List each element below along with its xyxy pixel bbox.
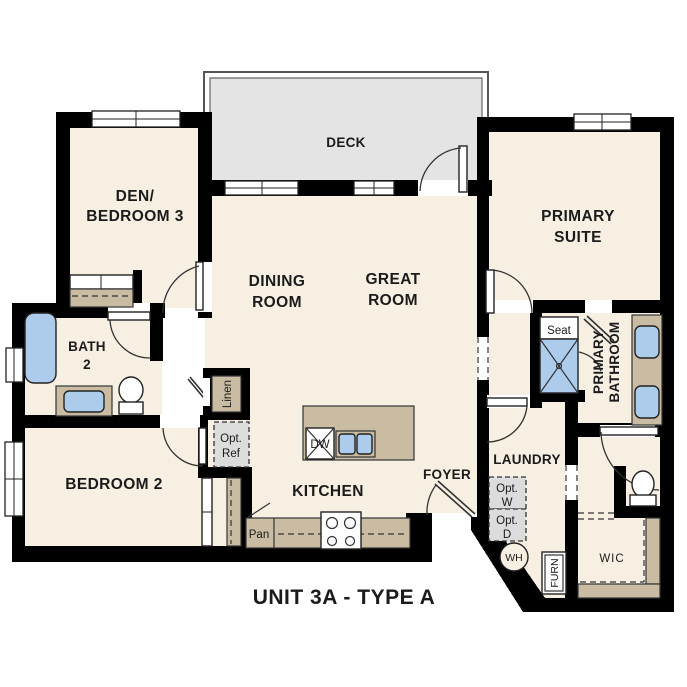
room-label-bath2-line2: 2	[83, 357, 91, 372]
wall-laundry-right-upper	[565, 390, 578, 465]
room-label-den-line2: BEDROOM 3	[86, 208, 183, 225]
primary-doorway	[489, 300, 533, 313]
room-label-great-line2: ROOM	[368, 292, 418, 309]
room-label-bath2-line1: BATH	[68, 339, 106, 354]
fixture-label-wh: WH	[505, 552, 523, 564]
bedroom2-doorway	[160, 415, 200, 428]
room-label-dining-line2: ROOM	[252, 294, 302, 311]
deck	[204, 72, 488, 196]
range	[321, 512, 361, 549]
room-label-laundry: LAUNDRY	[493, 452, 561, 467]
bath2-door-leaf	[108, 312, 150, 320]
den-door-leaf	[196, 262, 203, 310]
fixture-label-furn: FURN	[549, 558, 561, 587]
toilet-door-leaf	[600, 427, 658, 435]
bath2-vanity	[56, 386, 112, 416]
den-closet-shelf	[70, 289, 133, 307]
room-label-foyer: FOYER	[423, 467, 471, 482]
fixture-label-opt-ref-line1: Opt.	[220, 433, 242, 445]
linen-doorway	[203, 378, 210, 406]
vanity-sink-2	[635, 386, 659, 418]
fixture-label-opt-w-line1: Opt.	[496, 483, 518, 495]
fixture-label-opt-d-line2: D	[503, 529, 511, 541]
closet2-shelf	[227, 478, 241, 546]
wall-bottom-right	[540, 598, 674, 612]
primary-bath-doorway	[585, 300, 612, 313]
window	[225, 181, 298, 195]
fixture-label-linen: Linen	[222, 380, 234, 408]
fixture-label-dw: DW	[310, 439, 329, 451]
room-label-primary-suite-line1: PRIMARY	[541, 208, 615, 225]
room-label-deck: DECK	[326, 135, 365, 150]
window	[6, 348, 23, 382]
room-label-bedroom2: BEDROOM 2	[65, 476, 162, 493]
vanity-sink-1	[635, 326, 659, 358]
plan-title: UNIT 3A - TYPE A	[253, 586, 436, 609]
kitchen-sink	[336, 431, 375, 457]
laundry-door-leaf	[487, 398, 527, 406]
fixture-label-opt-d-line1: Opt.	[496, 515, 518, 527]
primary-toilet	[630, 471, 656, 506]
room-label-kitchen: KITCHEN	[292, 483, 364, 500]
greatroom-arch	[477, 337, 489, 380]
fixture-label-opt-w-line2: W	[502, 497, 513, 509]
bathtub	[25, 313, 56, 383]
wall-bedroom2-top	[12, 415, 160, 428]
window	[574, 114, 631, 130]
window	[92, 111, 180, 127]
bath2-toilet	[119, 377, 143, 414]
bath2-sink	[64, 391, 104, 412]
room-label-primary-bath-line2: BATHROOM	[607, 322, 622, 403]
primary-vanity	[632, 315, 662, 425]
entry-recess	[432, 513, 477, 562]
window	[5, 442, 23, 516]
wall-den-left	[56, 112, 70, 318]
room-label-dining-line1: DINING	[249, 273, 306, 290]
room-label-den-line1: DEN/	[116, 188, 155, 205]
window	[354, 181, 394, 195]
room-label-great-line1: GREAT	[365, 271, 420, 288]
wall-bath2-right	[150, 303, 163, 361]
room-label-primary-suite-line2: SUITE	[554, 229, 602, 246]
fixture-label-pan: Pan	[249, 529, 269, 541]
floor-plan: DECK DEN/ BEDROOM 3 DINING ROOM GREAT RO…	[0, 0, 687, 687]
fixture-label-seat: Seat	[547, 325, 571, 337]
den-closet	[70, 275, 133, 307]
room-label-wic: WIC	[599, 553, 624, 565]
wall-wic-left	[565, 500, 578, 612]
wall-greatroom-east	[477, 117, 489, 519]
bedroom2-door-leaf	[199, 428, 206, 464]
deck-door-leaf	[459, 146, 467, 192]
laundry-pass	[565, 465, 578, 500]
wall-left-lower	[12, 303, 25, 562]
wall-toilet-nook-bottom	[614, 506, 668, 518]
kitchen-island	[303, 406, 414, 460]
room-label-primary-bath-line1: PRIMARY	[591, 330, 606, 394]
primary-door-leaf	[486, 270, 494, 313]
fixture-label-opt-ref-line2: Ref	[222, 448, 241, 460]
